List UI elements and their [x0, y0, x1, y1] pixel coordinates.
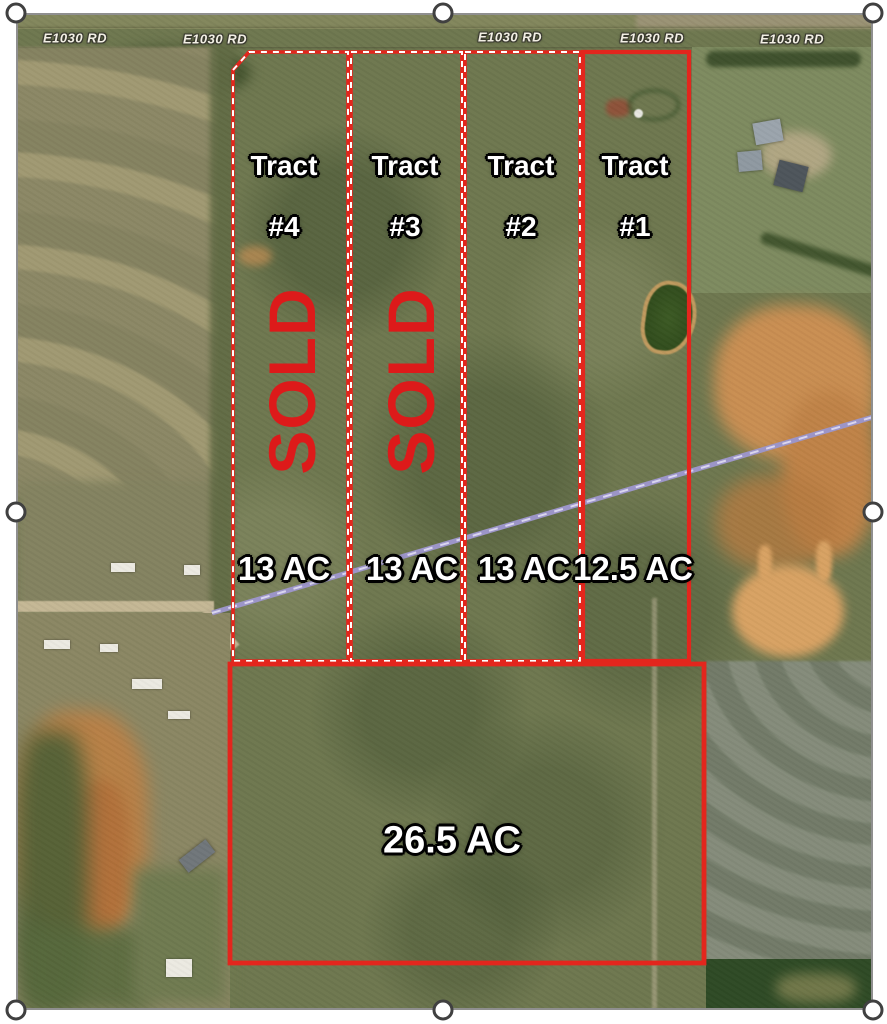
resize-handle-bottom-right[interactable] — [863, 1000, 884, 1021]
resize-handle-top-left[interactable] — [6, 3, 27, 24]
tract-1-name: Tract — [602, 150, 669, 182]
road-label: E1030 RD — [183, 32, 247, 47]
resize-handle-middle-left[interactable] — [6, 502, 27, 523]
aerial-map-image: E1030 RD E1030 RD E1030 RD E1030 RD E103… — [16, 13, 873, 1010]
tract-1-acreage: 12.5 AC — [573, 550, 693, 588]
tract-2-name: Tract — [488, 150, 555, 182]
tract-3-sold-label: SOLD — [373, 287, 449, 474]
document-canvas: E1030 RD E1030 RD E1030 RD E1030 RD E103… — [0, 0, 887, 1024]
tract-3-name: Tract — [372, 150, 439, 182]
resize-handle-bottom-left[interactable] — [6, 1000, 27, 1021]
road-label: E1030 RD — [43, 31, 107, 46]
resize-handle-middle-right[interactable] — [863, 502, 884, 523]
tract-3-acreage: 13 AC — [366, 550, 458, 588]
tract-4-sold-label: SOLD — [254, 287, 330, 474]
tract-2-number: #2 — [505, 211, 536, 243]
tract-4-name: Tract — [251, 150, 318, 182]
tract-4-acreage: 13 AC — [238, 550, 330, 588]
tract-5-acreage: 26.5 AC — [383, 820, 521, 863]
tract-3-number: #3 — [389, 211, 420, 243]
tract-2-acreage: 13 AC — [478, 550, 570, 588]
resize-handle-bottom-center[interactable] — [433, 1000, 454, 1021]
resize-handle-top-right[interactable] — [863, 3, 884, 24]
road-label: E1030 RD — [620, 31, 684, 46]
road-label: E1030 RD — [760, 32, 824, 47]
tract-1-number: #1 — [619, 211, 650, 243]
resize-handle-top-center[interactable] — [433, 3, 454, 24]
tract-4-number: #4 — [268, 211, 299, 243]
road-label: E1030 RD — [478, 30, 542, 45]
